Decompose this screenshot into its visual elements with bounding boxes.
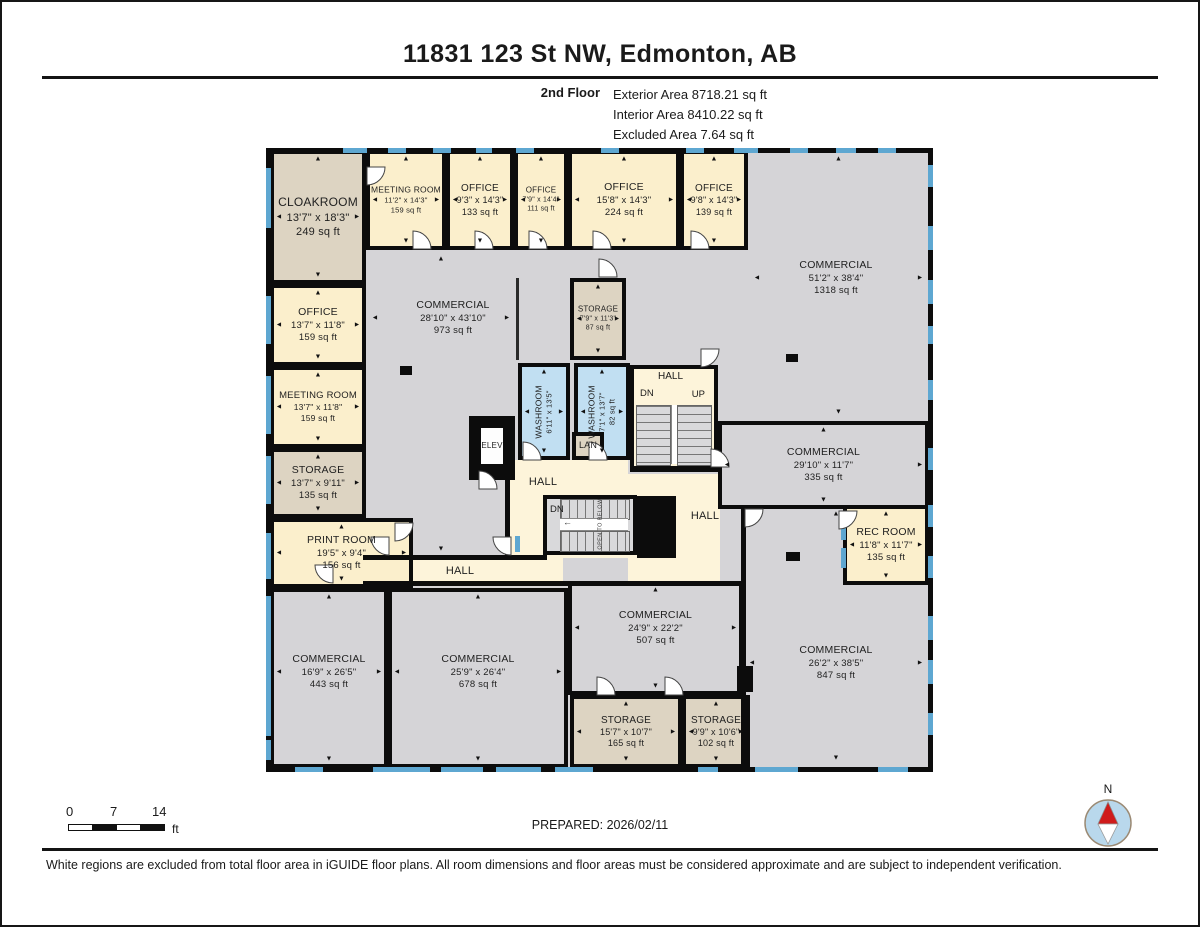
room-dimensions: 24'9" x 22'2" [619, 622, 692, 634]
dimension-arrow: ▲ [477, 156, 484, 163]
dimension-arrow: ▲ [538, 156, 545, 163]
dimension-arrow: ▼ [315, 436, 322, 443]
window-segment [878, 767, 908, 772]
window-segment [928, 280, 933, 304]
window-segment [734, 148, 758, 153]
room-dimensions: 26'2" x 38'5" [799, 657, 872, 669]
hall-label: HALL [658, 371, 683, 382]
dimension-arrow: ▼ [835, 409, 842, 416]
room-area: 165 sq ft [600, 738, 652, 750]
dimension-arrow: ► [401, 550, 408, 557]
room-area: 133 sq ft [457, 207, 504, 219]
dimension-arrow: ▲ [315, 290, 322, 297]
window-segment [373, 767, 430, 772]
room-dimensions: 28'10" x 43'10" [416, 312, 489, 324]
dimension-arrow: ► [736, 197, 743, 204]
dimension-arrow: ◄ [520, 197, 527, 204]
room-name: ELEV [481, 441, 502, 451]
dimension-arrow: ◄ [576, 316, 583, 323]
dimension-arrow: ◄ [276, 404, 283, 411]
dimension-arrow: ▲ [326, 594, 333, 601]
room-name: STORAGE [600, 713, 652, 726]
room-dimensions: 7'9" x 14'4" [523, 196, 560, 205]
window-segment [476, 148, 492, 153]
dimension-arrow: ► [434, 197, 441, 204]
structural-post [400, 366, 412, 375]
room-label: REC ROOM11'8" x 11'7"135 sq ft [856, 526, 915, 564]
stairwell-lower: DN ← OPEN TO BELOW [543, 495, 637, 555]
room-name: COMMERCIAL [799, 259, 872, 273]
dimension-arrow: ▼ [711, 238, 718, 245]
window-segment [841, 548, 846, 568]
room-area: 507 sq ft [619, 635, 692, 647]
dimension-arrow: ◄ [754, 275, 761, 282]
room-label: HALL [691, 509, 719, 523]
window-segment [928, 380, 933, 400]
room-label: MEETING ROOM13'7" x 11'8"159 sq ft [279, 390, 357, 424]
prepared-date: PREPARED: 2026/02/11 [0, 818, 1200, 832]
room-label: MEETING ROOM11'2" x 14'3"159 sq ft [371, 185, 441, 216]
dimension-arrow: ▼ [652, 683, 659, 690]
structural-post [637, 496, 676, 558]
dimension-arrow: ▼ [595, 348, 602, 355]
compass-north-label: N [1078, 782, 1138, 796]
room-label: STORAGE9'9" x 10'6"102 sq ft [691, 713, 741, 749]
room-name: OFFICE [597, 181, 652, 195]
door-icon [700, 348, 720, 368]
dimension-arrow: ▲ [403, 156, 410, 163]
room-label: ELEV [481, 441, 502, 451]
room-dimensions: 13'7" x 9'11" [291, 477, 345, 489]
wall-segment [516, 278, 519, 360]
door-icon [478, 470, 498, 490]
room-area: 249 sq ft [278, 225, 358, 239]
room-label: WASHROOM6'11" x 13'5" [534, 385, 555, 438]
window-segment [928, 660, 933, 684]
room-label: COMMERCIAL51'2" x 38'4"1318 sq ft [799, 259, 872, 297]
dimension-arrow: ► [917, 275, 924, 282]
room-area: 847 sq ft [799, 670, 872, 682]
room-label: STORAGE7'9" x 11'3"87 sq ft [578, 305, 618, 334]
room-label: OFFICE13'7" x 11'8"159 sq ft [291, 306, 345, 344]
compass: N [1078, 782, 1138, 850]
structural-post [786, 354, 798, 362]
dimension-arrow: ▼ [315, 354, 322, 361]
dimension-arrow: ◄ [686, 197, 693, 204]
dimension-arrow: ◄ [688, 728, 695, 735]
room-dimensions: 11'8" x 11'7" [856, 539, 915, 551]
room-label: LAN [579, 440, 597, 452]
room-dimensions: 25'9" x 26'4" [441, 666, 514, 678]
dimension-arrow: ► [917, 660, 924, 667]
structural-post [786, 552, 800, 561]
room-area: 139 sq ft [691, 207, 738, 219]
compass-icon [1081, 796, 1135, 850]
room-area: 443 sq ft [292, 679, 365, 691]
room-label: CLOAKROOM13'7" x 18'3"249 sq ft [278, 195, 358, 239]
area-stats: Exterior Area 8718.21 sq ft Interior Are… [613, 85, 767, 145]
dimension-arrow: ◄ [276, 550, 283, 557]
room-label: PRINT ROOM19'5" x 9'4"156 sq ft [307, 534, 376, 572]
room-dimensions: 11'2" x 14'3" [371, 196, 441, 206]
room-name: COMMERCIAL [787, 446, 860, 460]
room-dimensions: 15'8" x 14'3" [597, 194, 652, 206]
room-name: OFFICE [291, 306, 345, 320]
window-segment [343, 148, 367, 153]
stair-flight [636, 405, 671, 466]
dimension-arrow: ▲ [315, 372, 322, 379]
stairs-down-label: DN [550, 504, 564, 515]
window-segment [698, 767, 718, 772]
dimension-arrow: ▲ [315, 156, 322, 163]
room-area: 159 sq ft [291, 332, 345, 344]
interior-area: Interior Area 8410.22 sq ft [613, 105, 767, 125]
scale-label-0: 0 [66, 804, 73, 819]
room-area: 224 sq ft [597, 207, 652, 219]
dimension-arrow: ▼ [538, 238, 545, 245]
door-icon [838, 510, 858, 530]
dimension-arrow: ◄ [524, 408, 531, 415]
room-label: COMMERCIAL26'2" x 38'5"847 sq ft [799, 644, 872, 682]
dimension-arrow: ▼ [599, 448, 606, 455]
window-segment [515, 536, 520, 552]
door-icon [366, 166, 386, 186]
dimension-arrow: ► [614, 316, 621, 323]
room-dimensions: 16'9" x 26'5" [292, 666, 365, 678]
room-name: HALL [529, 475, 557, 489]
structural-post [737, 666, 753, 692]
room-dimensions: 19'5" x 9'4" [307, 547, 376, 559]
dimension-arrow: ▼ [541, 448, 548, 455]
dimension-arrow: ► [558, 408, 565, 415]
window-segment [928, 556, 933, 578]
window-segment [295, 767, 323, 772]
room-name: STORAGE [691, 713, 741, 726]
room-dimensions: 6'11" x 13'5" [545, 385, 555, 438]
door-icon [522, 441, 542, 461]
room-area: 159 sq ft [371, 206, 441, 216]
stair-flight [560, 531, 630, 552]
room-name: COMMERCIAL [441, 653, 514, 667]
room-dimensions: 13'7" x 18'3" [278, 211, 358, 225]
dimension-arrow: ▲ [475, 594, 482, 601]
room-area: 973 sq ft [416, 325, 489, 337]
room-dimensions: 13'7" x 11'8" [291, 319, 345, 331]
dimension-arrow: ► [917, 542, 924, 549]
room-dimensions: 7'1" x 13'7" [598, 385, 608, 438]
room-name: COMMERCIAL [619, 609, 692, 623]
room-area: 82 sq ft [608, 385, 618, 438]
room-name: COMMERCIAL [292, 653, 365, 667]
room-area: 159 sq ft [279, 413, 357, 424]
dimension-arrow: ▼ [621, 238, 628, 245]
dimension-arrow: ▼ [315, 506, 322, 513]
room-name: OFFICE [523, 186, 560, 196]
dimension-arrow: ▼ [438, 546, 445, 553]
room-label: COMMERCIAL24'9" x 22'2"507 sq ft [619, 609, 692, 647]
room-name: OFFICE [457, 182, 504, 195]
window-segment [441, 767, 483, 772]
header-divider [42, 76, 1158, 79]
dimension-arrow: ► [668, 197, 675, 204]
window-segment [928, 616, 933, 640]
footer-divider [42, 848, 1158, 851]
window-segment [755, 767, 798, 772]
dimension-arrow: ► [917, 462, 924, 469]
window-segment [266, 456, 271, 504]
window-segment [928, 448, 933, 470]
window-segment [601, 148, 619, 153]
room-area: 135 sq ft [291, 490, 345, 502]
dimension-arrow: ▲ [541, 369, 548, 376]
dimension-arrow: ▲ [599, 369, 606, 376]
room-label: HALL [529, 475, 557, 489]
dimension-arrow: ▼ [883, 573, 890, 580]
window-segment [555, 767, 593, 772]
dimension-arrow: ► [502, 197, 509, 204]
room-label: OFFICE9'8" x 14'3"139 sq ft [691, 182, 738, 218]
room-commercial-973 [366, 250, 516, 558]
dimension-arrow: ► [731, 625, 738, 632]
door-icon [394, 522, 414, 542]
room-name: WASHROOM [587, 385, 598, 438]
dimension-arrow: ◄ [452, 197, 459, 204]
room-name: STORAGE [578, 305, 618, 315]
room-name: MEETING ROOM [279, 390, 357, 402]
door-icon [744, 508, 764, 528]
dimension-arrow: ◄ [276, 214, 283, 221]
dimension-arrow: ▼ [820, 497, 827, 504]
dimension-arrow: ◄ [372, 197, 379, 204]
dimension-arrow: ▼ [403, 238, 410, 245]
room-name: HALL [691, 509, 719, 523]
dimension-arrow: ◄ [276, 322, 283, 329]
window-segment [928, 226, 933, 250]
window-segment [928, 713, 933, 735]
room-dimensions: 29'10" x 11'7" [787, 459, 860, 471]
window-segment [266, 740, 271, 760]
stairs-down-label: DN [640, 388, 654, 399]
room-dimensions: 15'7" x 10'7" [600, 726, 652, 738]
room-dimensions: 13'7" x 11'8" [279, 402, 357, 413]
window-segment [266, 533, 271, 579]
window-segment [928, 326, 933, 344]
room-label: WASHROOM7'1" x 13'7"82 sq ft [587, 385, 618, 438]
room-label: COMMERCIAL25'9" x 26'4"678 sq ft [441, 653, 514, 691]
window-segment [686, 148, 704, 153]
stairwell-upper: HALL DN UP OPEN TO BELOW [630, 365, 718, 470]
dimension-arrow: ► [556, 669, 563, 676]
dimension-arrow: ▼ [623, 756, 630, 763]
room-label: STORAGE13'7" x 9'11"135 sq ft [291, 464, 345, 502]
window-segment [266, 596, 271, 736]
dimension-arrow: ◄ [574, 625, 581, 632]
room-name: COMMERCIAL [416, 299, 489, 313]
door-icon [598, 258, 618, 278]
dimension-arrow: ◄ [276, 669, 283, 676]
room-area: 87 sq ft [578, 324, 618, 333]
room-label: OFFICE9'3" x 14'3"133 sq ft [457, 182, 504, 218]
dimension-arrow: ► [354, 322, 361, 329]
dimension-arrow: ► [376, 669, 383, 676]
dimension-arrow: ▲ [711, 156, 718, 163]
room-name: CLOAKROOM [278, 195, 358, 211]
dimension-arrow: ▼ [326, 756, 333, 763]
room-label: STORAGE15'7" x 10'7"165 sq ft [600, 713, 652, 749]
disclaimer-text: White regions are excluded from total fl… [46, 858, 1062, 872]
wall-segment [363, 555, 547, 560]
dimension-arrow: ▲ [595, 284, 602, 291]
dimension-arrow: ► [738, 728, 745, 735]
room-name: COMMERCIAL [799, 644, 872, 658]
dimension-arrow: ◄ [394, 669, 401, 676]
room-dimensions: 51'2" x 38'4" [799, 272, 872, 284]
window-segment [433, 148, 451, 153]
dimension-arrow: ◄ [574, 197, 581, 204]
dimension-arrow: ▼ [477, 238, 484, 245]
dimension-arrow: ▼ [315, 272, 322, 279]
door-icon [596, 676, 616, 696]
dimension-arrow: ▲ [820, 427, 827, 434]
room-dimensions: 9'3" x 14'3" [457, 195, 504, 207]
room-label: COMMERCIAL16'9" x 26'5"443 sq ft [292, 653, 365, 691]
window-segment [388, 148, 406, 153]
exterior-area: Exterior Area 8718.21 sq ft [613, 85, 767, 105]
room-label: OFFICE7'9" x 14'4"111 sq ft [523, 186, 560, 215]
room-area: 1318 sq ft [799, 285, 872, 297]
dimension-arrow: ◄ [724, 462, 731, 469]
room-name: WASHROOM [534, 385, 545, 438]
dimension-arrow: ▲ [883, 511, 890, 518]
stair-direction-arrow: ← [563, 517, 572, 527]
room-area: 102 sq ft [691, 738, 741, 750]
dimension-arrow: ▼ [338, 576, 345, 583]
room-area: 156 sq ft [307, 560, 376, 572]
room-name: STORAGE [291, 464, 345, 478]
dimension-arrow: ◄ [749, 660, 756, 667]
dimension-arrow: ▲ [315, 454, 322, 461]
stairs-up-label: UP [692, 389, 705, 400]
dimension-arrow: ◄ [849, 542, 856, 549]
stair-flight [677, 405, 712, 466]
window-segment [878, 148, 896, 153]
door-icon [690, 230, 710, 250]
room-area: 678 sq ft [441, 679, 514, 691]
dimension-arrow: ► [670, 728, 677, 735]
door-icon [664, 676, 684, 696]
dimension-arrow: ▼ [475, 756, 482, 763]
dimension-arrow: ▲ [623, 701, 630, 708]
floor-label: 2nd Floor [440, 85, 600, 100]
dimension-arrow: ◄ [580, 408, 587, 415]
dimension-arrow: ◄ [276, 480, 283, 487]
room-name: PRINT ROOM [307, 534, 376, 548]
dimension-arrow: ► [556, 197, 563, 204]
window-segment [496, 767, 541, 772]
page-title: 11831 123 St NW, Edmonton, AB [0, 40, 1200, 69]
window-segment [266, 168, 271, 228]
dimension-arrow: ▲ [713, 701, 720, 708]
dimension-arrow: ▲ [338, 524, 345, 531]
door-icon [492, 536, 512, 556]
dimension-arrow: ▼ [833, 755, 840, 762]
door-icon [412, 230, 432, 250]
dimension-arrow: ► [354, 214, 361, 221]
floor-plan: HALL DN UP OPEN TO BELOW DN ← OPEN TO BE… [266, 148, 933, 772]
open-to-below-label: OPEN TO BELOW [598, 498, 604, 549]
room-label: OFFICE15'8" x 14'3"224 sq ft [597, 181, 652, 219]
room-label: COMMERCIAL28'10" x 43'10"973 sq ft [416, 299, 489, 337]
dimension-arrow: ▲ [652, 587, 659, 594]
wall-segment [266, 767, 933, 772]
window-segment [928, 165, 933, 187]
dimension-arrow: ▲ [835, 156, 842, 163]
dimension-arrow: ▲ [438, 256, 445, 263]
dimension-arrow: ▼ [713, 756, 720, 763]
room-dimensions: 7'9" x 11'3" [578, 315, 618, 324]
room-area: 335 sq ft [787, 472, 860, 484]
scale-label-7: 7 [110, 804, 117, 819]
room-dimensions: 9'9" x 10'6" [691, 726, 741, 738]
room-label: HALL [446, 564, 474, 578]
room-area: 111 sq ft [523, 205, 560, 214]
scale-label-14: 14 [152, 804, 166, 819]
dimension-arrow: ◄ [372, 315, 379, 322]
room-label: COMMERCIAL29'10" x 11'7"335 sq ft [787, 446, 860, 484]
dimension-arrow: ◄ [576, 728, 583, 735]
window-segment [516, 148, 534, 153]
window-segment [928, 505, 933, 527]
room-name: MEETING ROOM [371, 185, 441, 196]
room-dimensions: 9'8" x 14'3" [691, 195, 738, 207]
dimension-arrow: ► [354, 404, 361, 411]
room-area: 135 sq ft [856, 552, 915, 564]
excluded-area: Excluded Area 7.64 sq ft [613, 125, 767, 145]
window-segment [266, 376, 271, 434]
hall-area [628, 555, 720, 581]
window-segment [790, 148, 808, 153]
room-name: HALL [446, 564, 474, 578]
room-name: OFFICE [691, 182, 738, 195]
window-segment [266, 296, 271, 344]
room-name: REC ROOM [856, 526, 915, 540]
dimension-arrow: ► [504, 315, 511, 322]
dimension-arrow: ► [618, 408, 625, 415]
window-segment [836, 148, 856, 153]
door-icon [592, 230, 612, 250]
room-name: LAN [579, 440, 597, 452]
wall-segment [363, 581, 743, 586]
dimension-arrow: ► [354, 480, 361, 487]
dimension-arrow: ▲ [621, 156, 628, 163]
dimension-arrow: ▲ [833, 511, 840, 518]
